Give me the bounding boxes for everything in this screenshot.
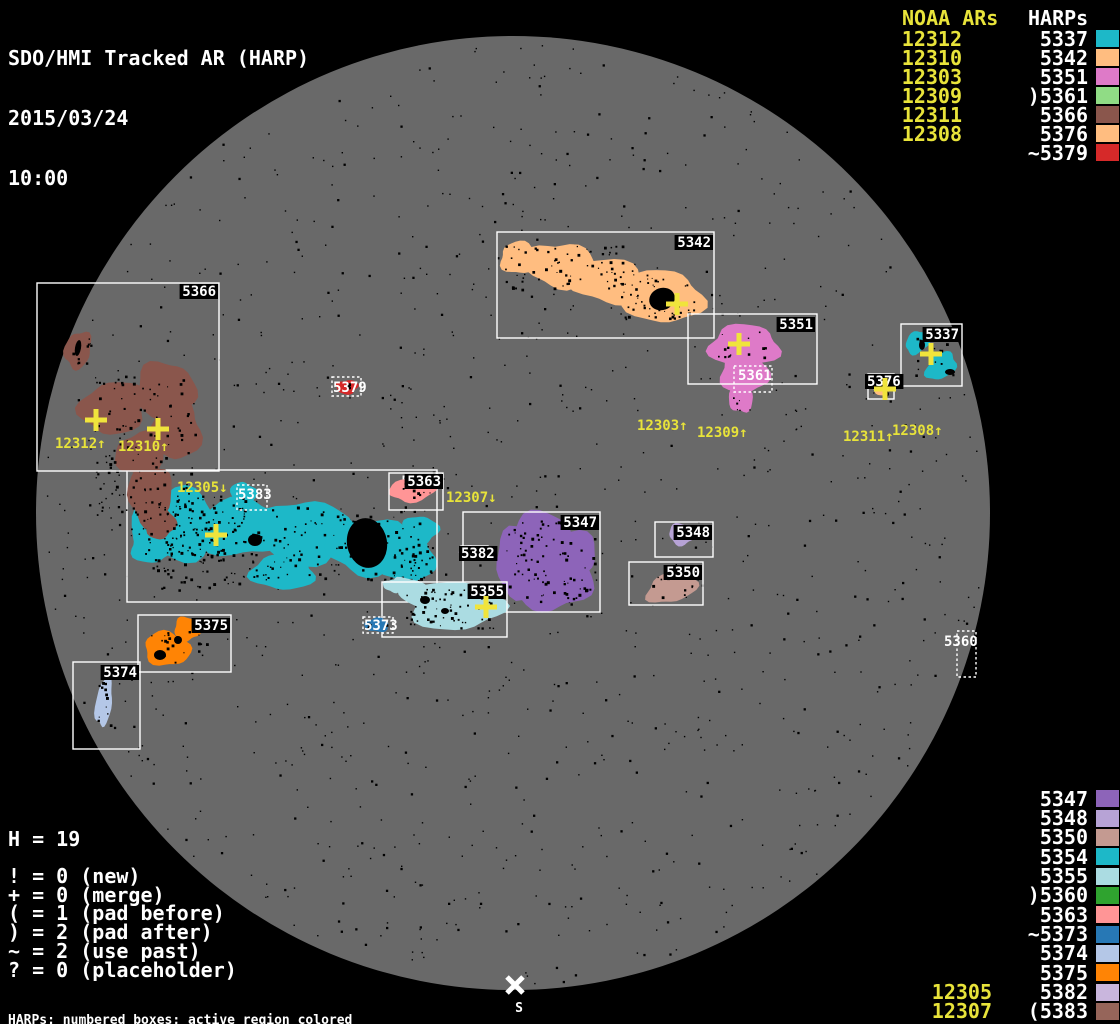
harp-label-5351: 5351 [779, 317, 813, 333]
noaa-label-12312: 12312↑ [55, 436, 106, 452]
noaa-label-12307: 12307↓ [446, 490, 497, 506]
harp-label-5382: 5382 [461, 546, 495, 562]
harp-color-swatch [1096, 887, 1119, 904]
harp-label-5360: 5360 [944, 634, 978, 650]
page-title: SDO/HMI Tracked AR (HARP) 2015/03/24 10:… [8, 8, 309, 228]
harp-label-5363: 5363 [407, 474, 441, 490]
harp-color-swatch [1096, 964, 1119, 981]
harp-region-5382: 5382 [459, 545, 498, 562]
footnotes: HARPs: numbered boxes; active region col… [8, 991, 462, 1024]
harp-color-swatch [1096, 868, 1119, 885]
harp-color-swatch [1096, 1003, 1119, 1020]
harp-color-swatch [1096, 144, 1119, 161]
harp-color-swatch [1096, 49, 1119, 66]
harp-color-swatch [1096, 810, 1119, 827]
harp-color-swatch [1096, 87, 1119, 104]
noaa-label-12309: 12309↑ [697, 425, 748, 441]
harp-color-swatch [1096, 984, 1119, 1001]
legend-top-right: 12312533712310534212303535112309)5361123… [896, 29, 1119, 162]
noaa-label-12308: 12308↑ [892, 423, 943, 439]
harp-label-5366: 5366 [182, 284, 216, 300]
harp-color-swatch [1096, 848, 1119, 865]
status-legend-line: ? = 0 (placeholder) [8, 961, 237, 980]
harp-region-5373: 5373 [363, 617, 398, 634]
harp-region-5379: 5379 [332, 377, 367, 396]
harp-label-5347: 5347 [563, 515, 597, 531]
harp-color-swatch [1096, 106, 1119, 123]
harp-color-swatch [1096, 926, 1119, 943]
noaa-label-12311: 12311↑ [843, 429, 894, 445]
harp-color-swatch [1096, 906, 1119, 923]
noaa-number: 12308 [896, 122, 962, 146]
harp-label-5348: 5348 [676, 525, 710, 541]
harp-number: (5383 [992, 999, 1088, 1023]
harp-color-swatch [1096, 125, 1119, 142]
legend-bottom-right: 53475348535053545355)53605363~5373537453… [896, 789, 1119, 1021]
harp-viewer: 5354536653425351536153375376537953635383… [0, 0, 1120, 1024]
harp-label-5342: 5342 [677, 235, 711, 251]
harp-label-5383: 5383 [238, 487, 272, 503]
noaa-ars-header: NOAA ARs [902, 8, 998, 28]
title-line: SDO/HMI Tracked AR (HARP) [8, 48, 309, 68]
harp-color-swatch [1096, 790, 1119, 807]
noaa-label-12310: 12310↑ [118, 439, 169, 455]
south-pole-label: S [515, 1001, 523, 1016]
harp-color-swatch [1096, 829, 1119, 846]
noaa-label-12303: 12303↑ [637, 418, 688, 434]
harps-header: HARPs [1028, 8, 1088, 28]
harp-label-5361: 5361 [738, 368, 772, 384]
harp-color-swatch [1096, 68, 1119, 85]
harp-label-5350: 5350 [666, 565, 700, 581]
harp-label-5373: 5373 [364, 618, 398, 634]
harp-label-5375: 5375 [194, 618, 228, 634]
status-legend: ! = 0 (new)+ = 0 (merge)( = 1 (pad befor… [8, 867, 237, 979]
harp-label-5379: 5379 [333, 380, 367, 396]
noaa-label-12305: 12305↓ [177, 480, 228, 496]
legend-row-5379: ~5379 [896, 143, 1119, 162]
footnote-harps: HARPs: numbered boxes; active region col… [8, 1015, 462, 1024]
harp-label-5337: 5337 [925, 327, 959, 343]
harp-label-5374: 5374 [103, 665, 137, 681]
date-line: 2015/03/24 [8, 108, 309, 128]
legend-row-5383: 12307(5383 [896, 1002, 1119, 1021]
noaa-number: 12307 [896, 999, 992, 1023]
harp-color-swatch [1096, 30, 1119, 47]
time-line: 10:00 [8, 168, 309, 188]
harp-color-swatch [1096, 945, 1119, 962]
harp-count: H = 19 [8, 829, 80, 849]
harp-number: ~5379 [962, 141, 1088, 165]
